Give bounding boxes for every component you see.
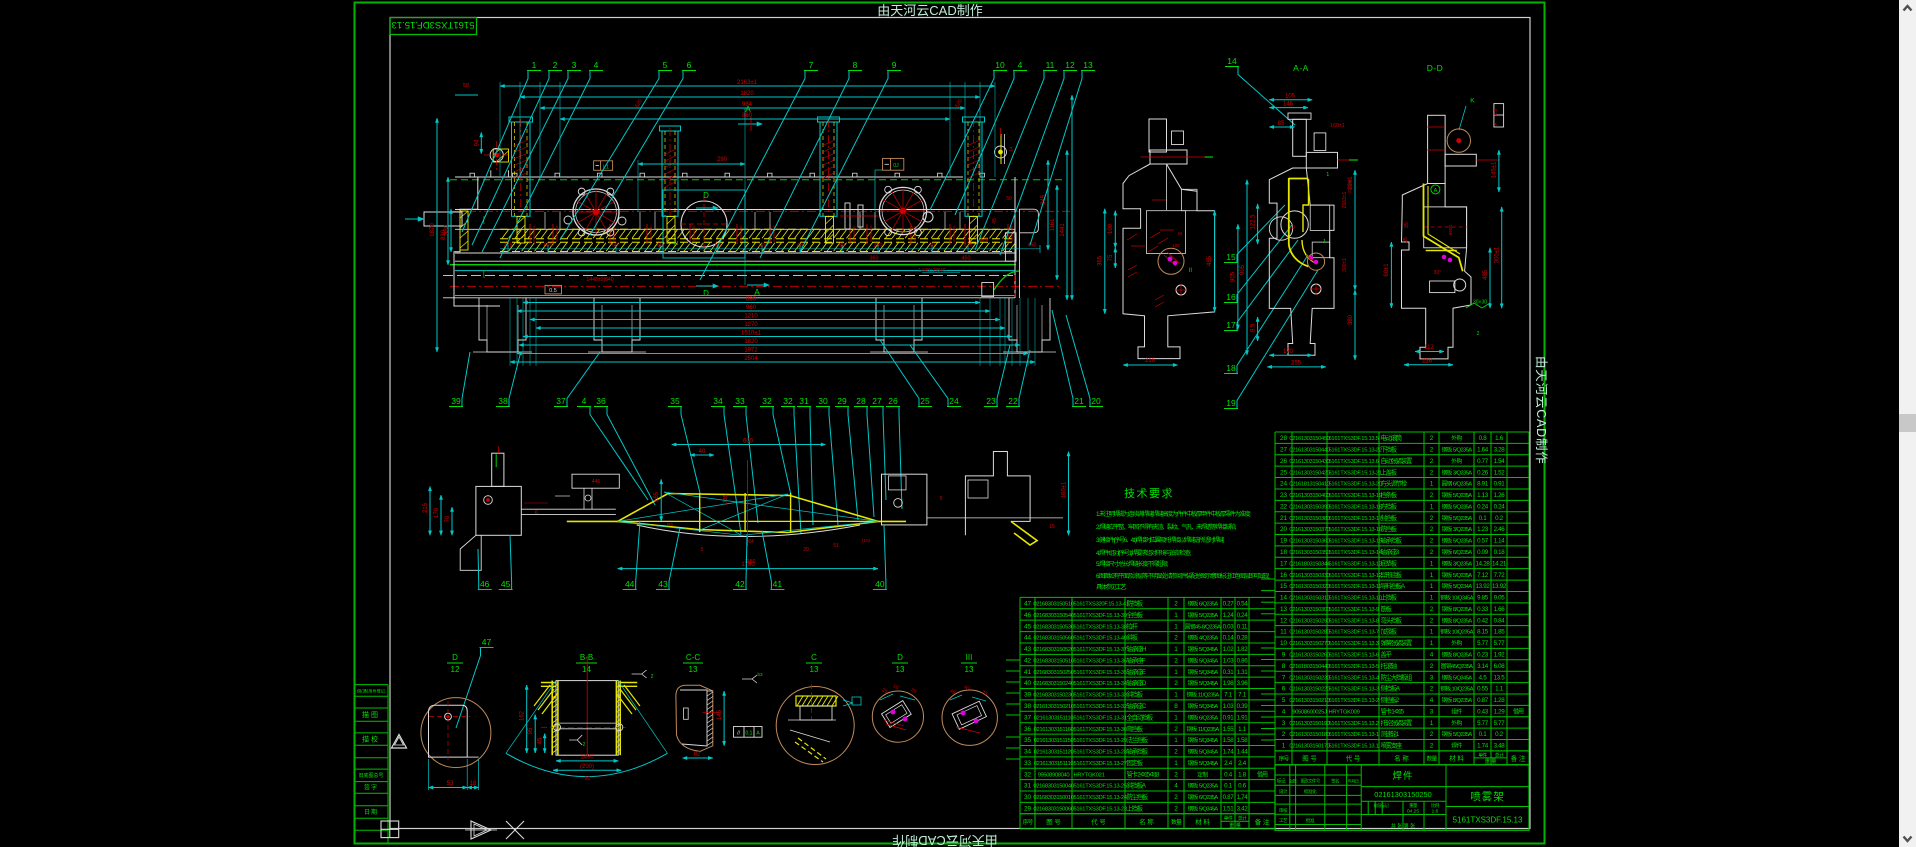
svg-text:1.98: 1.98 — [1223, 680, 1235, 687]
svg-text:0.91: 0.91 — [1494, 481, 1506, 488]
svg-text:0.28: 0.28 — [1237, 635, 1249, 642]
svg-text:1: 1 — [1430, 640, 1434, 647]
svg-text:总计: 总计 — [1238, 815, 1247, 822]
svg-text:0.39: 0.39 — [1237, 703, 1249, 710]
svg-text:由天河云CAD制作: 由天河云CAD制作 — [877, 3, 982, 18]
svg-text:02161303150390: 02161303150390 — [1289, 504, 1329, 510]
svg-text:360: 360 — [870, 256, 879, 262]
svg-text:0.87: 0.87 — [1477, 697, 1489, 704]
svg-text:02168303150510: 02168303150510 — [1033, 601, 1073, 607]
svg-text:1: 1 — [1174, 737, 1178, 744]
svg-text:02161303150180: 02161303150180 — [1289, 732, 1329, 738]
svg-text:4: 4 — [1430, 697, 1434, 704]
svg-text:45: 45 — [501, 579, 511, 589]
svg-text:加强板: 加强板 — [1381, 627, 1398, 636]
svg-text:1.74: 1.74 — [1477, 743, 1489, 750]
svg-text:60±1: 60±1 — [1384, 263, 1390, 277]
svg-text:13.92: 13.92 — [1492, 583, 1507, 590]
svg-text:钢板 11/Q235A: 钢板 11/Q235A — [1186, 725, 1219, 733]
svg-text:300±1: 300±1 — [1342, 258, 1348, 272]
svg-text:5161TXS3DF.15.13-20: 5161TXS3DF.15.13-20 — [1329, 482, 1382, 488]
svg-text:K: K — [1470, 98, 1475, 105]
svg-text:16: 16 — [1280, 572, 1288, 579]
svg-text:钢板 5/Q235A: 钢板 5/Q235A — [1441, 514, 1472, 522]
svg-text:备 注: 备 注 — [1511, 753, 1526, 762]
svg-text:全自动挡板: 全自动挡板 — [1127, 712, 1154, 721]
svg-text:1161: 1161 — [1050, 218, 1056, 232]
svg-text:5.77: 5.77 — [1494, 720, 1506, 727]
svg-text:轴承座F: 轴承座F — [1127, 655, 1146, 664]
svg-text:146: 146 — [1283, 101, 1294, 107]
svg-text:0.24: 0.24 — [1237, 612, 1249, 619]
svg-text:6. 图面如有平面及涂层等不明显处请参阅件装配总图示意图标注: 6. 图面如有平面及涂层等不明显处请参阅件装配总图示意图标注红色图层即可显现, — [1096, 572, 1270, 580]
svg-text:37: 37 — [556, 396, 566, 406]
svg-text:0.42: 0.42 — [1477, 617, 1489, 624]
svg-text:图 号: 图 号 — [1046, 818, 1061, 826]
svg-text:测速轮1: 测速轮1 — [1381, 729, 1400, 738]
svg-text:85: 85 — [1278, 121, 1285, 127]
svg-text:17: 17 — [1280, 560, 1288, 567]
svg-text:HRYTGK009: HRYTGK009 — [1329, 709, 1360, 715]
svg-text:14: 14 — [582, 665, 591, 674]
svg-text:39: 39 — [1024, 692, 1032, 699]
svg-text:8.15: 8.15 — [1477, 629, 1489, 636]
svg-text:7.1: 7.1 — [1224, 692, 1233, 699]
svg-text:02161303150210: 02161303150210 — [1033, 704, 1073, 710]
svg-text:14.28: 14.28 — [1476, 560, 1491, 567]
svg-text:钢板 5/Q235A: 钢板 5/Q235A — [1187, 782, 1218, 790]
svg-text:146: 146 — [717, 709, 723, 720]
svg-text:02168303150250: 02168303150250 — [1033, 670, 1073, 676]
svg-text:A: A — [754, 288, 760, 297]
svg-text:方头调节栓: 方头调节栓 — [1381, 479, 1408, 488]
svg-text:0.1: 0.1 — [746, 731, 753, 737]
svg-text:1: 1 — [1174, 623, 1178, 630]
svg-text:23: 23 — [1280, 492, 1288, 499]
svg-text:1.85: 1.85 — [1494, 629, 1506, 636]
svg-text:1.31: 1.31 — [1237, 669, 1249, 676]
svg-text:99508908040: 99508908040 — [1038, 772, 1070, 778]
svg-text:2: 2 — [1430, 538, 1434, 545]
svg-text:5161TXS3DF.15.13-13: 5161TXS3DF.15.13-13 — [1329, 561, 1382, 567]
svg-text:6500: 6500 — [1448, 224, 1453, 235]
svg-text:1: 1 — [532, 60, 537, 70]
svg-text:5: 5 — [701, 547, 704, 553]
svg-text:4: 4 — [1430, 652, 1434, 659]
svg-text:标准化: 标准化 — [1304, 788, 1317, 795]
svg-text:13: 13 — [1083, 60, 1093, 70]
svg-text:6.08: 6.08 — [1494, 663, 1506, 670]
svg-text:890: 890 — [746, 297, 757, 303]
svg-text:29: 29 — [837, 396, 847, 406]
svg-text:III: III — [966, 653, 973, 662]
svg-text:02168303150230: 02168303150230 — [1033, 693, 1073, 699]
svg-text:重量: 重量 — [1409, 802, 1418, 809]
svg-text:2: 2 — [1430, 606, 1434, 613]
svg-text:5161TXS3DF.15.13-38: 5161TXS3DF.15.13-38 — [1074, 624, 1127, 630]
svg-text:02161303150230: 02161303150230 — [1289, 675, 1329, 681]
svg-text:5161TXS3DF.15.13-40: 5161TXS3DF.15.13-40 — [1074, 636, 1127, 642]
svg-text:39: 39 — [451, 396, 461, 406]
svg-text:定制: 定制 — [1197, 770, 1208, 778]
svg-text:5161TXS3DF.15.13-36: 5161TXS3DF.15.13-36 — [1074, 658, 1127, 664]
svg-text:905: 905 — [1231, 271, 1237, 282]
svg-text:0.77: 0.77 — [1477, 458, 1489, 465]
svg-text:钢板 5/Q345A: 钢板 5/Q345A — [1187, 805, 1218, 813]
svg-text:0.57: 0.57 — [1477, 538, 1489, 545]
svg-text:管卡 2-Φ15-Φ18: 管卡 2-Φ15-Φ18 — [1127, 769, 1160, 778]
svg-text:02161303150280: 02161303150280 — [1289, 630, 1329, 636]
svg-text:02168303150510: 02168303150510 — [1033, 658, 1073, 664]
svg-text:D: D — [703, 191, 709, 200]
svg-text:5161TXS3DF.15.13-31: 5161TXS3DF.15.13-31 — [1074, 715, 1127, 721]
svg-text:圆钢45-8/Q235A: 圆钢45-8/Q235A — [1185, 622, 1221, 630]
svg-text:47: 47 — [1024, 600, 1032, 607]
svg-text:签名: 签名 — [1331, 778, 1339, 785]
svg-text:32: 32 — [783, 396, 793, 406]
svg-text:35: 35 — [1024, 737, 1032, 744]
svg-text:13.92: 13.92 — [1476, 583, 1491, 590]
svg-text:1972: 1972 — [744, 348, 758, 354]
svg-text:02161303150320: 02161303150320 — [1289, 584, 1329, 590]
svg-text:0.1: 0.1 — [1224, 783, 1233, 790]
svg-text:46: 46 — [480, 579, 490, 589]
svg-text:4.5: 4.5 — [1479, 674, 1488, 681]
svg-text:02161803150344: 02161803150344 — [1289, 561, 1330, 567]
svg-text:27: 27 — [1280, 446, 1288, 453]
svg-text:1.74: 1.74 — [1237, 794, 1249, 801]
svg-text:备 注: 备 注 — [1255, 817, 1270, 826]
svg-text:95: 95 — [528, 727, 534, 734]
svg-text:100: 100 — [1172, 243, 1180, 248]
svg-text:41: 41 — [1024, 669, 1032, 676]
svg-text:42: 42 — [735, 579, 745, 589]
svg-text:钢板 6/Q235A: 钢板 6/Q235A — [1187, 713, 1218, 721]
svg-text:H: H — [674, 241, 678, 247]
svg-text:防尘大挡板组: 防尘大挡板组 — [1381, 672, 1413, 681]
svg-text:1: 1 — [1430, 720, 1434, 727]
svg-text:02161303150250: 02161303150250 — [1374, 790, 1432, 799]
svg-text:0.11: 0.11 — [1237, 623, 1248, 630]
svg-text:75: 75 — [1108, 254, 1114, 261]
svg-text:代 号: 代 号 — [1091, 817, 1106, 826]
svg-text:112: 112 — [1424, 345, 1434, 351]
svg-text:0J: 0J — [893, 163, 899, 169]
svg-text:0.2: 0.2 — [1495, 731, 1504, 738]
svg-text:02161303150370: 02161303150370 — [1289, 527, 1329, 533]
svg-text:26: 26 — [1280, 458, 1288, 465]
svg-text:钢板 5/Q235A: 钢板 5/Q235A — [1441, 571, 1472, 579]
svg-text:02161303150430: 02161303150430 — [1289, 459, 1329, 465]
svg-text:下挡板: 下挡板 — [1381, 444, 1398, 453]
svg-text:02168303150560: 02168303150560 — [1033, 636, 1073, 642]
svg-text:02168303150060: 02168303150060 — [1033, 807, 1073, 813]
svg-text:0.33: 0.33 — [1477, 606, 1489, 613]
svg-text:轴承座E: 轴承座E — [1127, 667, 1146, 676]
svg-text:1: 1 — [1174, 669, 1178, 676]
svg-text:固定板: 固定板 — [1127, 758, 1144, 767]
svg-text:7.12: 7.12 — [1477, 572, 1489, 579]
svg-text:1.26: 1.26 — [1494, 492, 1506, 499]
svg-text:0.4: 0.4 — [1224, 771, 1233, 778]
svg-text:A-A: A-A — [1293, 63, 1309, 73]
svg-text:15: 15 — [1280, 583, 1288, 590]
svg-text:侧挡板A: 侧挡板A — [1381, 684, 1401, 693]
svg-text:托滚轴: 托滚轴 — [1381, 661, 1397, 670]
svg-text:255: 255 — [1291, 361, 1302, 367]
svg-text:13: 13 — [896, 665, 905, 674]
svg-text:B-B: B-B — [580, 653, 593, 662]
svg-text:18: 18 — [1226, 363, 1236, 373]
svg-text:21: 21 — [1074, 396, 1084, 406]
svg-text:盖平: 盖平 — [1381, 650, 1392, 659]
svg-text:24: 24 — [1280, 481, 1288, 488]
svg-text:5161TXS3DF.15.13-4: 5161TXS3DF.15.13-4 — [1329, 675, 1380, 681]
svg-text:轴承座3: 轴承座3 — [1381, 547, 1400, 556]
svg-text:45: 45 — [538, 737, 544, 744]
svg-text:5.77: 5.77 — [1477, 720, 1489, 727]
svg-text:5161TXS3DF.15.13-21: 5161TXS3DF.15.13-21 — [1329, 470, 1382, 476]
svg-text:02168303150520: 02168303150520 — [1033, 647, 1073, 653]
svg-text:02161303150300: 02161303150300 — [1289, 607, 1329, 613]
svg-text:02161303151160: 02161303151160 — [1034, 727, 1074, 733]
svg-text:0.24: 0.24 — [1477, 503, 1489, 510]
svg-text:钢板 4/Q235A: 钢板 4/Q235A — [1187, 634, 1218, 642]
svg-text:51: 51 — [833, 543, 839, 549]
svg-text:160±1: 160±1 — [1330, 123, 1345, 129]
svg-text:2: 2 — [1430, 731, 1434, 738]
svg-text:1.03: 1.03 — [1223, 703, 1235, 710]
svg-text:1.82: 1.82 — [1237, 646, 1249, 653]
svg-text:钢板 5/Q234A: 钢板 5/Q234A — [1441, 582, 1472, 590]
svg-text:5161TXS320F.15.13-41: 5161TXS320F.15.13-41 — [1074, 601, 1129, 607]
svg-text:02161303150420: 02161303150420 — [1289, 470, 1329, 476]
svg-text:喷雾支座: 喷雾支座 — [1381, 741, 1402, 750]
svg-text:485: 485 — [1207, 255, 1213, 266]
svg-text:5.77: 5.77 — [1494, 640, 1506, 647]
svg-text:1: 1 — [1430, 481, 1434, 488]
svg-text:5161TXS3DF.15.13-3: 5161TXS3DF.15.13-3 — [1329, 687, 1379, 693]
svg-text:170: 170 — [434, 507, 440, 518]
svg-text:5: 5 — [940, 496, 943, 502]
svg-text:重 量: 重 量 — [1485, 757, 1497, 765]
svg-text:(200): (200) — [580, 764, 594, 770]
svg-text:5161TXS3DF.15.13-23: 5161TXS3DF.15.13-23 — [1074, 807, 1127, 813]
svg-text:弹簧张紧装置: 弹簧张紧装置 — [1381, 638, 1412, 647]
svg-text:64: 64 — [748, 539, 754, 545]
svg-text:0.5: 0.5 — [1493, 108, 1498, 115]
svg-text:轴承座C: 轴承座C — [1127, 701, 1147, 710]
svg-text:轴承挡板: 轴承挡板 — [1381, 536, 1403, 545]
svg-text:15: 15 — [1049, 524, 1055, 530]
svg-text:02161303150220: 02161303150220 — [1289, 687, 1329, 693]
svg-text:33: 33 — [1024, 760, 1032, 767]
svg-text:44: 44 — [1024, 635, 1032, 642]
svg-text:自动张紧装置: 自动张紧装置 — [1381, 456, 1412, 465]
svg-text:钢板 5/Q235A: 钢板 5/Q235A — [1441, 491, 1472, 499]
svg-text:1: 1 — [1430, 503, 1434, 510]
svg-text:钢板 5/Q345A: 钢板 5/Q345A — [1187, 668, 1218, 676]
svg-text:5161TXS3DF.15.13.6: 5161TXS3DF.15.13.6 — [1329, 459, 1379, 465]
svg-text:25: 25 — [1280, 469, 1288, 476]
svg-text:借用: 借用 — [1257, 770, 1268, 778]
svg-text:1.66: 1.66 — [1494, 606, 1506, 613]
svg-text:04.25: 04.25 — [1407, 809, 1419, 815]
svg-text:13.5: 13.5 — [1494, 674, 1506, 681]
svg-text:6: 6 — [535, 510, 538, 516]
svg-text:钢板 5/Q345A: 钢板 5/Q345A — [1187, 736, 1218, 744]
svg-text:0.09: 0.09 — [1477, 549, 1489, 556]
svg-text:46: 46 — [1024, 612, 1032, 619]
svg-text:365: 365 — [1098, 255, 1104, 266]
svg-text:8.91: 8.91 — [1477, 481, 1489, 488]
svg-text:日期: 日期 — [364, 808, 378, 816]
svg-text:32: 32 — [1024, 771, 1032, 778]
svg-text:1: 1 — [1174, 692, 1178, 699]
svg-text:2504: 2504 — [744, 356, 758, 362]
svg-text:1.14: 1.14 — [1494, 538, 1506, 545]
svg-text:9: 9 — [892, 60, 897, 70]
svg-text:17: 17 — [1226, 320, 1236, 330]
svg-text:10: 10 — [995, 60, 1005, 70]
svg-text:1.44: 1.44 — [1237, 749, 1249, 756]
svg-text:20: 20 — [803, 547, 809, 553]
svg-text:5. 焊接尺寸总长焊缝长度不得超限;: 5. 焊接尺寸总长焊缝长度不得超限; — [1096, 560, 1169, 568]
svg-text:D: D — [703, 289, 709, 298]
svg-text:905: 905 — [1240, 264, 1246, 275]
svg-text:0.27: 0.27 — [1223, 600, 1235, 607]
svg-text:0.26: 0.26 — [1477, 469, 1489, 476]
svg-text:27: 27 — [872, 396, 882, 406]
svg-text:44: 44 — [625, 579, 635, 589]
svg-text:1: 1 — [1430, 583, 1434, 590]
svg-text:弯头挡板: 弯头挡板 — [1381, 615, 1403, 624]
svg-text:1490: 1490 — [580, 755, 594, 761]
svg-text:82: 82 — [694, 752, 701, 758]
svg-text:技术要求: 技术要求 — [1124, 487, 1174, 500]
svg-text:42: 42 — [1024, 657, 1032, 664]
svg-text:代 号: 代 号 — [1346, 753, 1361, 762]
svg-text:1.28: 1.28 — [1494, 697, 1506, 704]
svg-text:旧底图总号: 旧底图总号 — [358, 772, 383, 779]
svg-text:485: 485 — [1483, 269, 1489, 280]
svg-text:0.1: 0.1 — [1479, 515, 1488, 522]
svg-text:0.31: 0.31 — [1223, 669, 1235, 676]
svg-text:1.03: 1.03 — [1223, 657, 1235, 664]
svg-text:1.13: 1.13 — [1477, 492, 1489, 499]
svg-text:30: 30 — [1024, 794, 1032, 801]
svg-text:02168303150010: 02168303150010 — [1033, 795, 1073, 801]
svg-text:圆钢 6/Q235A: 圆钢 6/Q235A — [1441, 480, 1472, 488]
svg-text:41: 41 — [773, 579, 783, 589]
svg-text:0.23: 0.23 — [1477, 652, 1489, 659]
svg-text:钢板 5/Q235A: 钢板 5/Q235A — [1441, 730, 1472, 738]
svg-text:防挡板: 防挡板 — [1381, 524, 1398, 533]
svg-text:D-D: D-D — [1427, 63, 1444, 73]
svg-text:2: 2 — [1430, 469, 1434, 476]
svg-text:1510±1: 1510±1 — [741, 331, 762, 337]
svg-text:1.6: 1.6 — [1495, 435, 1504, 442]
svg-text:上挡板: 上挡板 — [1381, 593, 1398, 602]
svg-text:0.87: 0.87 — [1223, 794, 1235, 801]
svg-text:2: 2 — [1430, 549, 1434, 556]
svg-text:钢板 8/Q235A: 钢板 8/Q235A — [1441, 616, 1472, 624]
svg-text:5161TXS3DF.15.13.5: 5161TXS3DF.15.13.5 — [1329, 436, 1379, 442]
svg-text:15: 15 — [1226, 252, 1236, 262]
svg-text:11: 11 — [1046, 60, 1055, 70]
svg-text:13: 13 — [965, 665, 974, 674]
svg-text:35: 35 — [670, 396, 680, 406]
svg-text:5161TXS3DF.15.13.1: 5161TXS3DF.15.13.1 — [1329, 744, 1379, 750]
svg-text:2: 2 — [1430, 743, 1434, 750]
svg-text:2: 2 — [1174, 806, 1178, 813]
svg-text:34: 34 — [1024, 749, 1032, 756]
svg-text:0.54: 0.54 — [1237, 600, 1249, 607]
svg-text:(10): (10) — [862, 538, 871, 543]
svg-text:90508600025J: 90508600025J — [1292, 709, 1327, 715]
svg-text:37: 37 — [1024, 714, 1032, 721]
svg-text:封挡板: 封挡板 — [1381, 513, 1398, 522]
svg-text:0.2: 0.2 — [1495, 515, 1504, 522]
svg-text:5161TXS3DF.15.13-1: 5161TXS3DF.15.13-1 — [1329, 732, 1379, 738]
svg-text:电动滚筒: 电动滚筒 — [1381, 433, 1402, 442]
svg-text:960: 960 — [746, 305, 757, 311]
svg-text:0.14: 0.14 — [1223, 635, 1235, 642]
svg-text:7.72: 7.72 — [1494, 572, 1506, 579]
svg-text:02161803150440: 02161803150440 — [1289, 664, 1329, 670]
svg-text:钢板 3/Q235A: 钢板 3/Q235A — [1441, 559, 1472, 567]
svg-text:2: 2 — [1430, 458, 1434, 465]
svg-text:31: 31 — [1024, 783, 1032, 790]
svg-text:总计: 总计 — [1495, 752, 1504, 759]
svg-text:具体参见工艺.: 具体参见工艺. — [1096, 583, 1127, 591]
svg-text:3.28: 3.28 — [1494, 446, 1506, 453]
svg-text:1: 1 — [1430, 560, 1434, 567]
svg-text:2: 2 — [1430, 435, 1434, 442]
svg-text:02161303150450: 02161303150450 — [1289, 436, 1329, 442]
svg-text:0.55: 0.55 — [1477, 686, 1489, 693]
svg-text:5161TXS3DF.15.13-9: 5161TXS3DF.15.13-9 — [1329, 607, 1379, 613]
svg-text:5161TXS3DF.15.13-10: 5161TXS3DF.15.13-10 — [1329, 596, 1382, 602]
svg-text:由天河云CAD制作: 由天河云CAD制作 — [892, 833, 997, 847]
svg-text:2: 2 — [1174, 657, 1178, 664]
svg-text:14: 14 — [1009, 146, 1015, 152]
svg-text:2: 2 — [651, 674, 654, 680]
svg-text:12: 12 — [1280, 617, 1288, 624]
svg-text:1441: 1441 — [1060, 223, 1066, 237]
svg-text:32: 32 — [762, 396, 772, 406]
svg-text:重 量: 重 量 — [1229, 821, 1241, 829]
svg-text:3.14: 3.14 — [1477, 663, 1489, 670]
svg-text:2: 2 — [1430, 663, 1434, 670]
svg-text:43: 43 — [1024, 646, 1032, 653]
svg-text:5161TXS3DF.15.13-24: 5161TXS3DF.15.13-24 — [1074, 795, 1128, 801]
svg-text:16: 16 — [1226, 292, 1236, 302]
svg-text:轴承挡板: 轴承挡板 — [1127, 747, 1149, 756]
svg-text:钢板 8/Q235A: 钢板 8/Q235A — [1441, 605, 1472, 613]
svg-text:钢板 5/Q345A: 钢板 5/Q345A — [1187, 679, 1218, 687]
svg-text:14: 14 — [1280, 595, 1288, 602]
svg-text:28: 28 — [1280, 435, 1288, 442]
svg-text:216: 216 — [1422, 358, 1433, 364]
svg-text:外购: 外购 — [1451, 639, 1462, 647]
svg-text:7: 7 — [809, 60, 814, 70]
svg-text:借用: 借用 — [1513, 707, 1524, 715]
svg-text:85: 85 — [1404, 222, 1410, 228]
svg-text:5161TXS3DF.15.13-18: 5161TXS3DF.15.13-18 — [1329, 504, 1382, 510]
svg-text:3.48: 3.48 — [1494, 743, 1506, 750]
svg-text:3: 3 — [1430, 708, 1434, 715]
